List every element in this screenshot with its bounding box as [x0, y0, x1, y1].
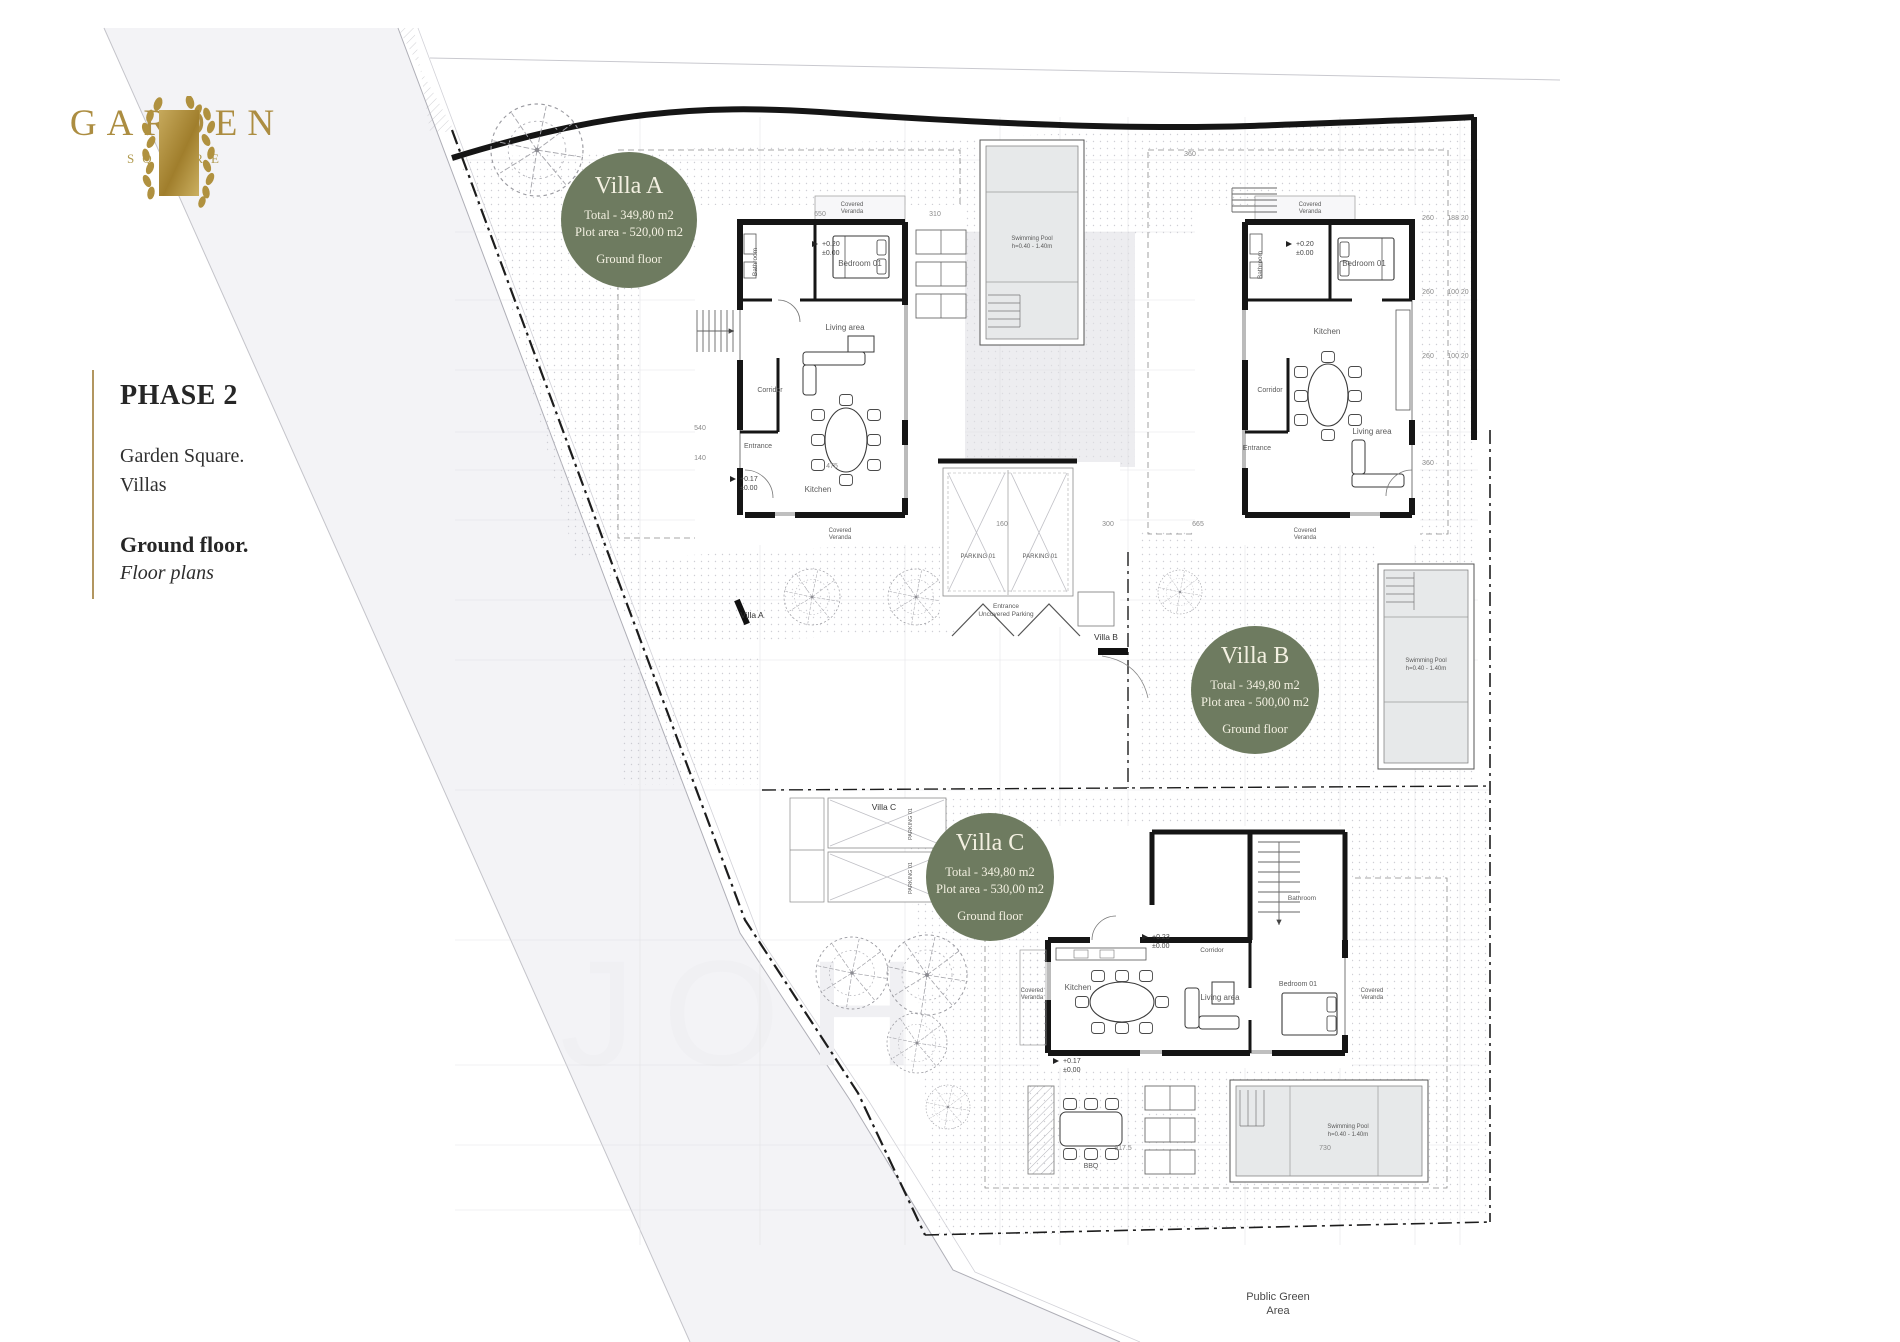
floor-subtitle: Floor plans: [120, 562, 350, 585]
svg-text:h=0.40 - 1.40m: h=0.40 - 1.40m: [1012, 244, 1053, 250]
pool-label: Swimming Pool: [1011, 236, 1052, 242]
pool-c: [1230, 1080, 1428, 1182]
badge-title: Villa B: [1191, 643, 1319, 670]
villa-b-badge: Villa B Total - 349,80 m2 Plot area - 50…: [1191, 626, 1319, 754]
pool-label: Swimming Pool: [1327, 1124, 1368, 1130]
svg-text:Living area: Living area: [1352, 427, 1392, 436]
site-top-line: [430, 58, 1560, 80]
floor-title: Ground floor.: [120, 532, 350, 558]
public-green-label: Public Green Area: [1246, 1291, 1310, 1317]
badge-plot: Plot area - 520,00 m2: [561, 224, 697, 241]
room-label: Veranda: [829, 535, 852, 541]
brand-logo: GARDEN SQUARE: [62, 96, 292, 167]
svg-text:260: 260: [1422, 353, 1434, 360]
villa-c-badge: Villa C Total - 349,80 m2 Plot area - 53…: [926, 813, 1054, 941]
room-label: Corridor: [757, 387, 783, 394]
svg-text:h=0.40 - 1.40m: h=0.40 - 1.40m: [1406, 666, 1447, 672]
svg-text:±0.00: ±0.00: [740, 485, 758, 492]
svg-text:+0.20: +0.20: [822, 241, 840, 248]
room-label: Entrance: [744, 443, 772, 450]
page: JOH: [0, 0, 1900, 1342]
svg-text:665: 665: [1192, 521, 1204, 528]
phase-title: PHASE 2: [120, 380, 350, 412]
bed-a: [833, 236, 889, 278]
villa-c-building: [1020, 826, 1352, 1068]
svg-text:Bathroom: Bathroom: [1288, 895, 1316, 902]
title-block: PHASE 2 Garden Square. Villas Ground flo…: [92, 370, 350, 599]
svg-text:h=0.40 - 1.40m: h=0.40 - 1.40m: [1328, 1132, 1369, 1138]
entrance-label: Entrance: [993, 603, 1019, 610]
watermark: JOH: [560, 929, 944, 1097]
svg-text:140: 140: [694, 455, 706, 462]
project-type: Villas: [120, 471, 350, 500]
svg-text:Public Green: Public Green: [1246, 1291, 1310, 1303]
room-label: Covered: [829, 528, 852, 534]
gate-label-a: Villa A: [740, 610, 764, 620]
svg-text:+0.20: +0.20: [1296, 241, 1314, 248]
loungers-c: [1145, 1086, 1195, 1174]
svg-text:±0.00: ±0.00: [1296, 250, 1314, 257]
svg-text:730: 730: [1319, 1145, 1331, 1152]
badge-total: Total - 349,80 m2: [561, 207, 697, 224]
svg-text:Corridor: Corridor: [1200, 947, 1224, 954]
svg-text:Uncovered Parking: Uncovered Parking: [978, 611, 1034, 618]
badge-title: Villa A: [561, 173, 697, 200]
badge-plot: Plot area - 530,00 m2: [926, 881, 1054, 898]
svg-text:Corridor: Corridor: [1257, 387, 1283, 394]
svg-text:100 20: 100 20: [1447, 289, 1469, 296]
badge-floor: Ground floor: [1191, 722, 1319, 737]
svg-text:475: 475: [826, 463, 838, 470]
svg-text:±0.00: ±0.00: [1063, 1067, 1081, 1074]
gate-label-c: Villa C: [872, 802, 896, 812]
svg-text:±0.00: ±0.00: [822, 250, 840, 257]
svg-text:Area: Area: [1266, 1305, 1290, 1317]
project-name: Garden Square.: [120, 442, 350, 471]
svg-text:Covered: Covered: [1294, 528, 1317, 534]
room-label: Living area: [825, 323, 865, 332]
svg-text:Veranda: Veranda: [1361, 995, 1384, 1001]
svg-text:260: 260: [1422, 289, 1434, 296]
svg-text:Veranda: Veranda: [1299, 209, 1322, 215]
svg-text:BBQ: BBQ: [1084, 1163, 1099, 1170]
svg-text:Kitchen: Kitchen: [1314, 327, 1341, 336]
svg-text:Covered: Covered: [1361, 988, 1384, 994]
badge-plot: Plot area - 500,00 m2: [1191, 694, 1319, 711]
svg-text:Living area: Living area: [1200, 993, 1240, 1002]
svg-text:100 20: 100 20: [1447, 353, 1469, 360]
svg-text:Veranda: Veranda: [1021, 995, 1044, 1001]
svg-text:Bathroom: Bathroom: [1257, 251, 1264, 279]
svg-text:±0.00: ±0.00: [1152, 943, 1170, 950]
svg-text:160: 160: [996, 521, 1008, 528]
svg-text:+0.23: +0.23: [1152, 934, 1170, 941]
svg-text:Kitchen: Kitchen: [1065, 983, 1092, 992]
parking-label: PARKING 01: [961, 554, 997, 560]
svg-text:Veranda: Veranda: [1294, 535, 1317, 541]
room-label: Bathroom: [752, 248, 759, 276]
svg-text:360: 360: [1422, 460, 1434, 467]
room-label: Kitchen: [805, 485, 832, 494]
pool-a: [980, 140, 1084, 345]
svg-text:PARKING 01: PARKING 01: [908, 808, 914, 840]
svg-text:Entrance: Entrance: [1243, 445, 1271, 452]
badge-title: Villa C: [926, 830, 1054, 857]
svg-text:260: 260: [1422, 215, 1434, 222]
room-label: Covered: [841, 202, 864, 208]
svg-text:310: 310: [929, 211, 941, 218]
svg-text:917.5: 917.5: [1114, 1145, 1132, 1152]
villa-a-badge: Villa A Total - 349,80 m2 Plot area - 52…: [561, 152, 697, 288]
bed-c: [1282, 993, 1337, 1035]
logo-mark: [62, 96, 292, 226]
room-label: Bedroom 01: [838, 259, 882, 268]
pool-label: Swimming Pool: [1405, 658, 1446, 664]
badge-floor: Ground floor: [926, 909, 1054, 924]
badge-total: Total - 349,80 m2: [926, 864, 1054, 881]
svg-text:Covered: Covered: [1299, 202, 1322, 208]
svg-text:Bedroom 01: Bedroom 01: [1279, 981, 1317, 988]
loungers-terrace: [916, 230, 966, 318]
svg-text:Bedroom 01: Bedroom 01: [1342, 259, 1386, 268]
svg-text:650: 650: [814, 211, 826, 218]
svg-text:188 20: 188 20: [1447, 215, 1469, 222]
parking-court: [938, 461, 1148, 698]
leaf-column-left: [140, 109, 157, 200]
svg-text:Covered: Covered: [1021, 988, 1044, 994]
badge-total: Total - 349,80 m2: [1191, 677, 1319, 694]
svg-text:540: 540: [694, 425, 706, 432]
svg-text:PARKING 01: PARKING 01: [908, 862, 914, 894]
svg-text:PARKING 01: PARKING 01: [1023, 554, 1059, 560]
room-label: Veranda: [841, 209, 864, 215]
svg-text:360: 360: [1184, 151, 1196, 158]
gate-label-b: Villa B: [1094, 632, 1118, 642]
svg-text:300: 300: [1102, 521, 1114, 528]
leaf-column-right: [197, 107, 217, 209]
badge-floor: Ground floor: [561, 252, 697, 267]
svg-text:+0.17: +0.17: [1063, 1058, 1081, 1065]
svg-text:+0.17: +0.17: [740, 476, 758, 483]
